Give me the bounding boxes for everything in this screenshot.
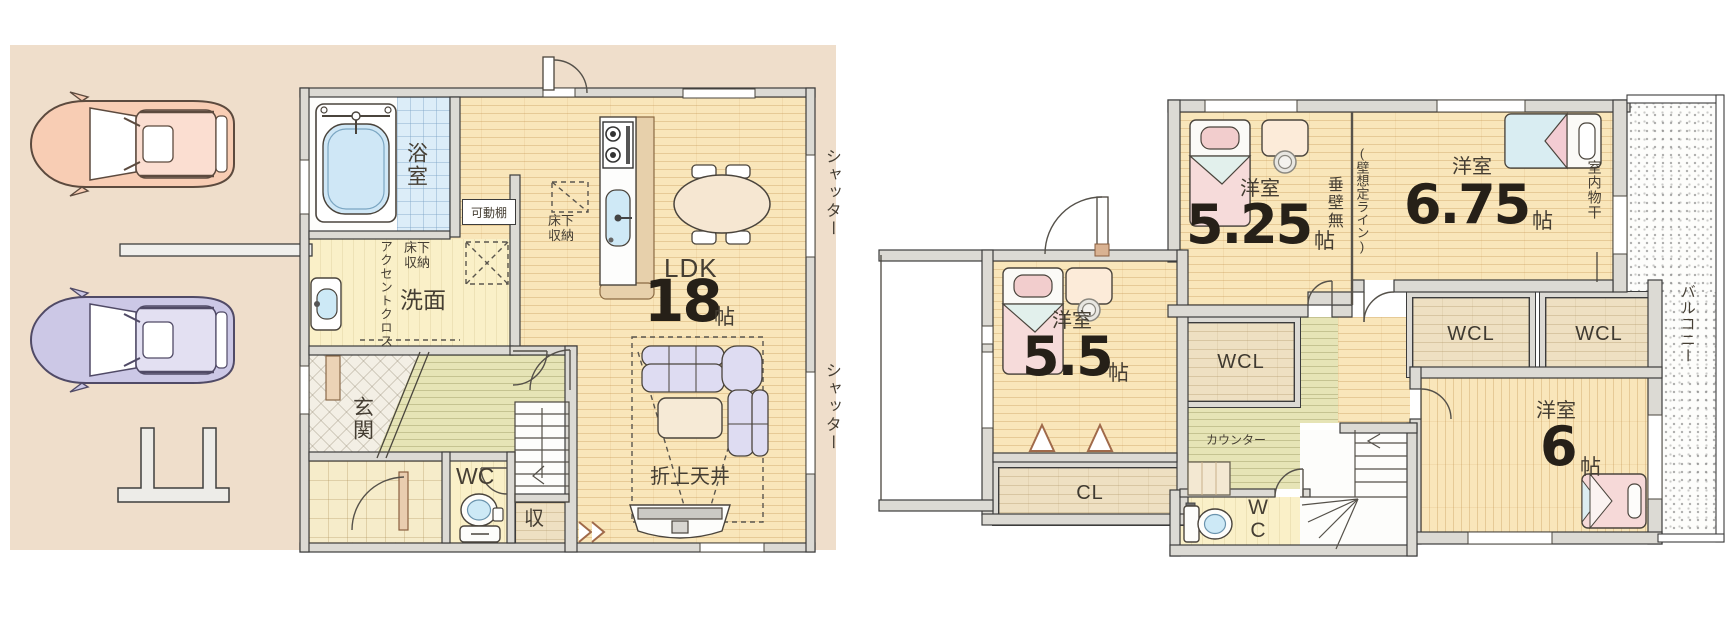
room-6-size: 6 [1540,420,1576,474]
walk-in-closet-east2: WCL [1540,292,1658,377]
counter-label: カウンター [1206,434,1266,447]
wcl-center-label: WCL [1217,351,1264,374]
storage-label: 収 [524,508,544,530]
balcony-floor-north [1627,103,1716,292]
bathroom-floor [309,97,397,231]
coffered-ceiling-label: 折上天井 [650,466,730,488]
room-525-size: 5.25 [1186,198,1311,252]
ldk-size-unit: 帖 [714,306,735,330]
wcl-east2-label: WCL [1575,323,1622,346]
balcony-label: バルコニー [1678,284,1695,364]
shutter-upper-label: シャッター [822,148,840,238]
accent-cloth-label: アクセントクロス [378,240,392,348]
walk-in-closet-east1: WCL [1407,292,1535,377]
kitchen-underfloor-label: 床下収納 [548,214,578,243]
walk-in-closet-center: WCL [1182,317,1300,407]
assumed-wall-line-label: (壁想定ライン) [1354,146,1369,254]
closet-cl: CL [993,462,1187,525]
room-675-unit: 帖 [1532,210,1553,234]
wc1-label: WC [456,464,494,490]
washroom-label: 洗面 [400,288,446,314]
wc2-label: WC [1246,496,1270,542]
movable-shelf-box: 可動棚 [462,199,516,225]
indoor-drying-label: 室内物干 [1586,160,1602,220]
floor-plan-canvas: WCL WCL WCL CL 可動棚 [0,0,1730,644]
ldk-size: 18 [644,272,721,330]
room-675-size: 6.75 [1404,178,1529,232]
entrance-label: 玄関 [350,396,374,442]
stairs-floor1[interactable] [515,402,569,502]
room-55-size: 5.5 [1022,330,1112,384]
corridor2-floor [1338,317,1410,423]
room-525-unit: 帖 [1314,230,1335,254]
cl-label: CL [1076,482,1104,505]
washroom-underfloor-label: 床下収納 [404,241,434,270]
movable-shelf-label: 可動棚 [471,204,507,221]
room-6-floor [1421,378,1648,532]
stairs-floor2[interactable] [1300,430,1407,545]
room-55-unit: 帖 [1108,362,1129,386]
storage-room-floor [309,461,449,542]
bathroom-label: 浴室 [404,142,428,188]
shutter-lower-label: シャッター [822,362,840,452]
hanging-wall-label: 垂壁無 [1324,176,1342,230]
wcl-east1-label: WCL [1447,323,1494,346]
room-6-unit: 帖 [1580,456,1601,480]
wc2-floor [1180,497,1300,545]
